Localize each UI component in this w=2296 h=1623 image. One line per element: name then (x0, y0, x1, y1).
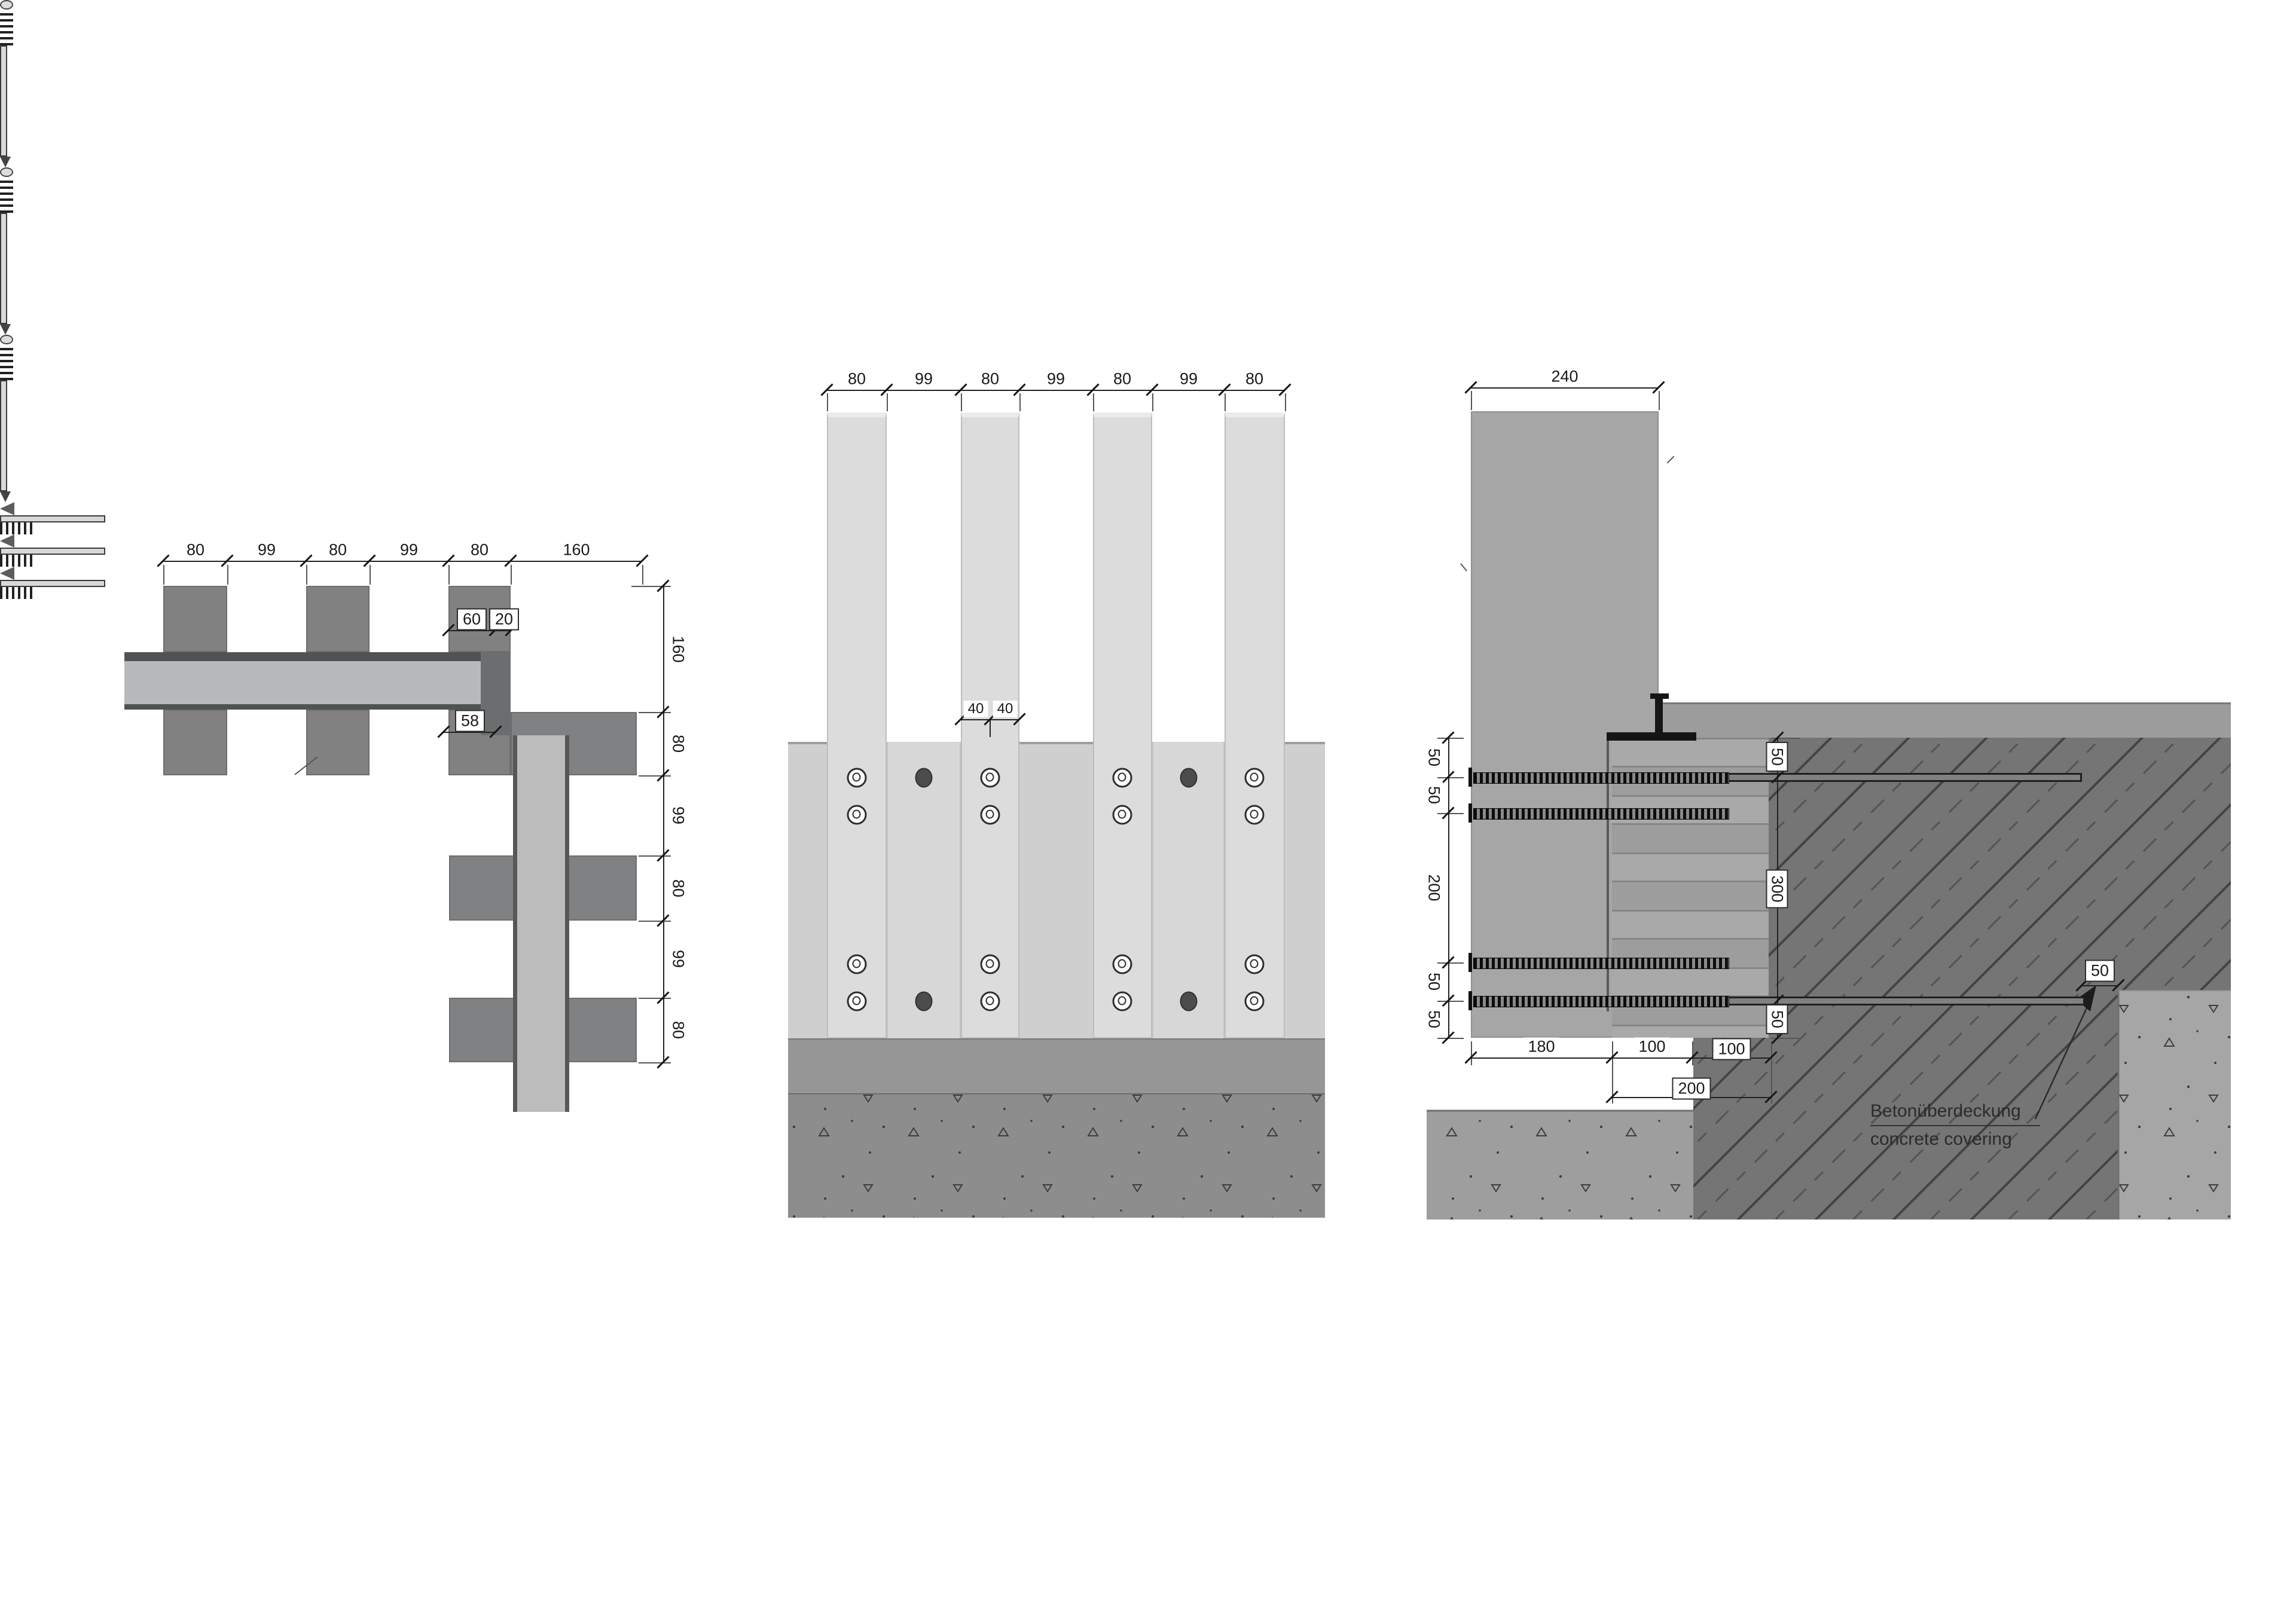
corner-post-member (513, 735, 569, 1112)
dim-label-boxed: 20 (489, 609, 519, 631)
dim-label: 40 (993, 701, 1018, 717)
dim-label-boxed: 100 (1712, 1038, 1751, 1060)
dim-label: 50 (1425, 744, 1443, 771)
dim-label: 80 (669, 875, 688, 901)
dim-ext-line (306, 565, 307, 585)
dim-ext-line (1093, 393, 1094, 411)
dim-line (990, 719, 991, 737)
front-slat-4 (1225, 412, 1285, 1038)
dim-label: 80 (977, 370, 1003, 389)
dim-label: 50 (1425, 782, 1443, 808)
dim-ext-line (1471, 1041, 1472, 1065)
dim-label-boxed: 200 (1672, 1078, 1711, 1100)
screw-head-2 (1468, 803, 1472, 823)
dowel-icon (1180, 992, 1198, 1011)
dim-label: 160 (558, 541, 594, 560)
bracket-cap (1650, 693, 1669, 699)
dim-label-boxed: 50 (1766, 1004, 1788, 1034)
screw-icon (1245, 992, 1265, 1011)
dim-ext-line (1659, 391, 1660, 410)
dim-label: 99 (911, 370, 937, 389)
screw-icon (1245, 955, 1265, 974)
dowel-icon (1180, 768, 1198, 788)
screw-head-4 (1468, 991, 1472, 1010)
screw-icon (847, 768, 867, 788)
dim-ext-line (639, 921, 671, 922)
screw-icon (981, 992, 1000, 1011)
dim-ext-line (1285, 393, 1286, 411)
screw-icon (1113, 768, 1132, 788)
screw-icon (1113, 992, 1132, 1011)
front-slat-1 (827, 412, 887, 1038)
dim-label: 99 (669, 802, 688, 829)
dim-label-boxed: 50 (1766, 742, 1788, 772)
dim-line (1471, 387, 1659, 389)
dim-ext-line (639, 998, 671, 999)
dim-ext-line (639, 855, 671, 857)
annotation-line2: concrete covering (1870, 1126, 2040, 1151)
dim-label: 80 (844, 370, 870, 389)
dim-label: 99 (254, 541, 280, 560)
dim-label: 200 (1425, 870, 1443, 905)
screw-head-1 (1468, 768, 1472, 787)
dim-label: 180 (1523, 1038, 1559, 1056)
dim-label: 50 (1425, 968, 1443, 995)
screw-thread-2 (1473, 808, 1729, 820)
batten-plan-5 (306, 710, 370, 775)
dim-label: 40 (964, 701, 988, 717)
dim-label: 99 (396, 541, 422, 560)
screw-head-3 (1468, 953, 1472, 972)
rail-plan (124, 652, 494, 710)
bracket-flange (1607, 732, 1696, 741)
dim-ext-line (511, 565, 512, 585)
screw-icon (847, 992, 867, 1011)
dim-ext-line (448, 565, 450, 585)
dim-ext-line (639, 1062, 671, 1063)
dim-label: 99 (669, 946, 688, 972)
dim-label: 240 (1547, 368, 1582, 386)
dim-ext-line (961, 393, 962, 411)
dim-label-boxed: 60 (457, 609, 487, 631)
screw-icon (1245, 768, 1265, 788)
screw-icon (1245, 805, 1265, 825)
dim-ext-line (1437, 738, 1464, 739)
dim-label: 80 (182, 541, 209, 560)
dim-line (663, 586, 664, 1062)
dim-ext-line (1692, 1041, 1693, 1065)
dim-ext-line (1437, 777, 1464, 778)
screw-icon (981, 805, 1000, 825)
dim-ext-line (227, 565, 228, 585)
slab-top-band (1659, 702, 2231, 738)
dim-line (1448, 738, 1449, 1038)
dim-ext-line (370, 565, 371, 585)
dim-ext-line (1437, 1001, 1464, 1002)
dim-label: 160 (669, 631, 688, 667)
screw-thread-3 (1473, 958, 1729, 969)
dim-label: 100 (1634, 1038, 1669, 1056)
dim-label-boxed: 50 (2085, 960, 2115, 982)
screw-icon (1113, 955, 1132, 974)
dim-label: 80 (669, 730, 688, 757)
screw-thread-1 (1473, 772, 1729, 784)
dowel-icon (915, 992, 933, 1011)
dim-ext-line (1019, 393, 1021, 411)
dim-label: 80 (466, 541, 493, 560)
drawing-canvas: 80 99 80 99 80 160 160 80 99 80 99 80 60… (0, 0, 2296, 1623)
dim-line (2082, 985, 2118, 986)
screw-icon (847, 955, 867, 974)
dim-ext-line (1225, 393, 1226, 411)
screw-icon (981, 955, 1000, 974)
dim-label: 80 (1241, 370, 1268, 389)
dim-ext-line (1471, 391, 1472, 410)
corner-return (481, 652, 511, 735)
batten-plan-2 (306, 586, 370, 652)
dim-label-boxed: 300 (1766, 869, 1788, 908)
dim-ext-line (631, 586, 671, 587)
dim-label: 80 (1109, 370, 1135, 389)
batten-plan-1 (163, 586, 227, 652)
batten-plan-4 (163, 710, 227, 775)
dim-line (827, 390, 1285, 391)
dim-ext-line (887, 393, 888, 411)
dim-label: 50 (1425, 1006, 1443, 1032)
front-slat-3 (1093, 412, 1152, 1038)
screw-thread-4 (1473, 996, 1729, 1007)
dim-label: 99 (1043, 370, 1069, 389)
dim-ext-line (1437, 813, 1464, 814)
dim-label: 99 (1176, 370, 1202, 389)
dim-ext-line (642, 565, 643, 585)
dim-ext-line (163, 565, 164, 585)
annotation-text: Betonüberdeckung concrete covering (1870, 1100, 2040, 1151)
bracket-stem (1655, 697, 1663, 734)
dim-label: 80 (325, 541, 351, 560)
dim-ext-line (827, 393, 828, 411)
dowel-icon (915, 768, 933, 788)
dim-ext-line (1152, 393, 1153, 411)
screw-icon (847, 805, 867, 825)
dim-label-boxed: 58 (455, 710, 485, 732)
annotation-line1: Betonüberdeckung (1870, 1100, 2040, 1126)
dim-ext-line (1437, 1038, 1464, 1039)
screw-icon (981, 768, 1000, 788)
dim-label: 80 (669, 1017, 688, 1043)
dim-ext-line (639, 712, 671, 713)
dim-ext-line (1437, 962, 1464, 964)
screw-icon (1113, 805, 1132, 825)
plinth-band (788, 1038, 1325, 1093)
dim-ext-line (639, 775, 671, 777)
dim-line (163, 561, 642, 562)
